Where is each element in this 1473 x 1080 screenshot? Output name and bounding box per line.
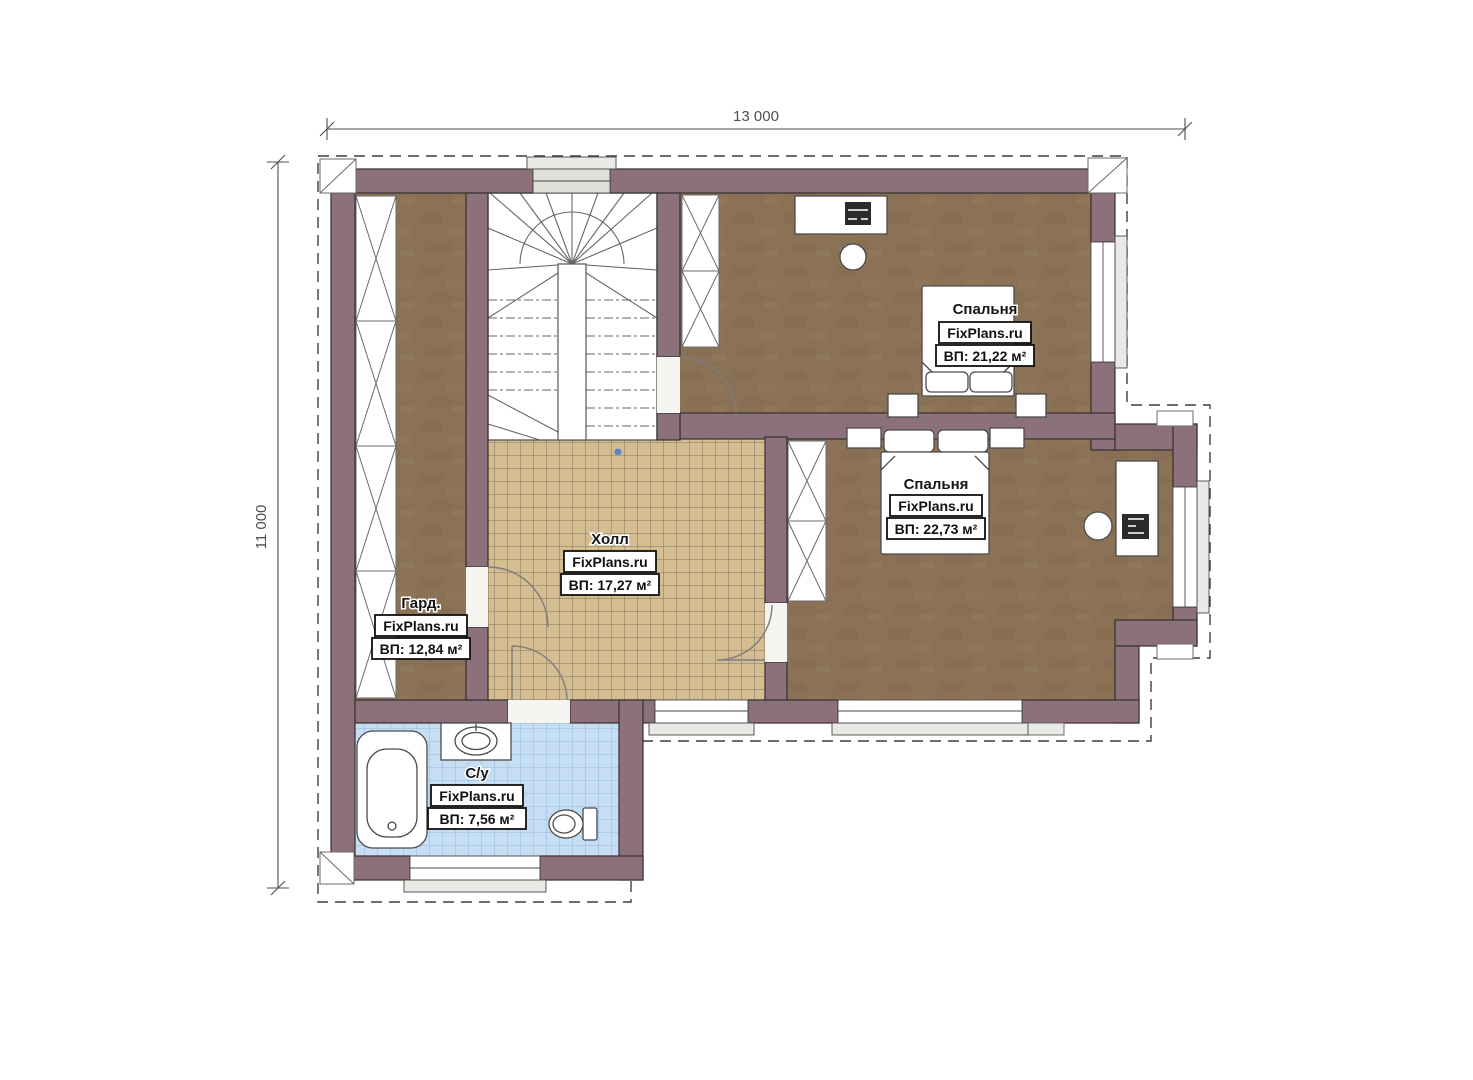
sink (441, 723, 511, 760)
room-name: Холл (591, 531, 629, 548)
chair (1084, 512, 1112, 540)
area-text: ВП: 22,73 м² (895, 521, 978, 537)
pillar-top-right (1088, 158, 1127, 193)
toilet (549, 808, 597, 840)
dimension-top-value: 13 000 (733, 108, 779, 125)
stair-landing-spine (558, 264, 586, 440)
window-bathroom (404, 856, 546, 892)
stair-marker-dot (615, 449, 622, 456)
window-bedroom1-right (1091, 236, 1127, 368)
closet-bedroom2 (788, 441, 826, 601)
staircase (488, 193, 657, 456)
watermark-text: FixPlans.ru (947, 325, 1022, 341)
dimension-left: 11 000 (253, 155, 289, 895)
nightstand (888, 394, 918, 417)
room-name: Спальня (904, 476, 969, 493)
nightstand (990, 428, 1024, 448)
area-text: ВП: 21,22 м² (944, 348, 1027, 364)
window-top (527, 157, 616, 193)
watermark-text: FixPlans.ru (383, 618, 458, 634)
sill-bottom-right (1024, 723, 1064, 735)
pillar-bath-corner (320, 852, 354, 884)
room-name: Спальня (953, 301, 1018, 318)
window-bedroom2-south-2 (832, 700, 1028, 735)
window-bay (1173, 481, 1209, 613)
pillow (926, 372, 968, 392)
area-text: ВП: 17,27 м² (569, 577, 652, 593)
chair (840, 244, 866, 270)
floor-plan-svg: Спальня FixPlans.ru ВП: 21,22 м² Спальня… (0, 0, 1473, 1080)
pillar-top-left (320, 159, 356, 193)
watermark-text: FixPlans.ru (439, 788, 514, 804)
bathtub (357, 731, 427, 848)
monitor-icon (845, 202, 871, 225)
pillow (884, 430, 934, 452)
room-name: С/у (465, 765, 489, 782)
nightstand (847, 428, 881, 448)
pillow (938, 430, 988, 452)
dimension-left-value: 11 000 (253, 505, 270, 550)
window-bedroom2-south-1 (649, 700, 754, 735)
pillow (970, 372, 1012, 392)
closet-bedroom1 (682, 195, 719, 347)
pillar-bay-bottom (1157, 644, 1193, 659)
area-text: ВП: 12,84 м² (380, 641, 463, 657)
pillar-bay-top (1157, 411, 1193, 426)
watermark-text: FixPlans.ru (572, 554, 647, 570)
watermark-text: FixPlans.ru (898, 498, 973, 514)
area-text: ВП: 7,56 м² (440, 811, 515, 827)
room-name: Гард. (401, 595, 440, 612)
floor-plan-page: Спальня FixPlans.ru ВП: 21,22 м² Спальня… (0, 0, 1473, 1080)
nightstand (1016, 394, 1046, 417)
dimension-top: 13 000 (320, 108, 1192, 140)
